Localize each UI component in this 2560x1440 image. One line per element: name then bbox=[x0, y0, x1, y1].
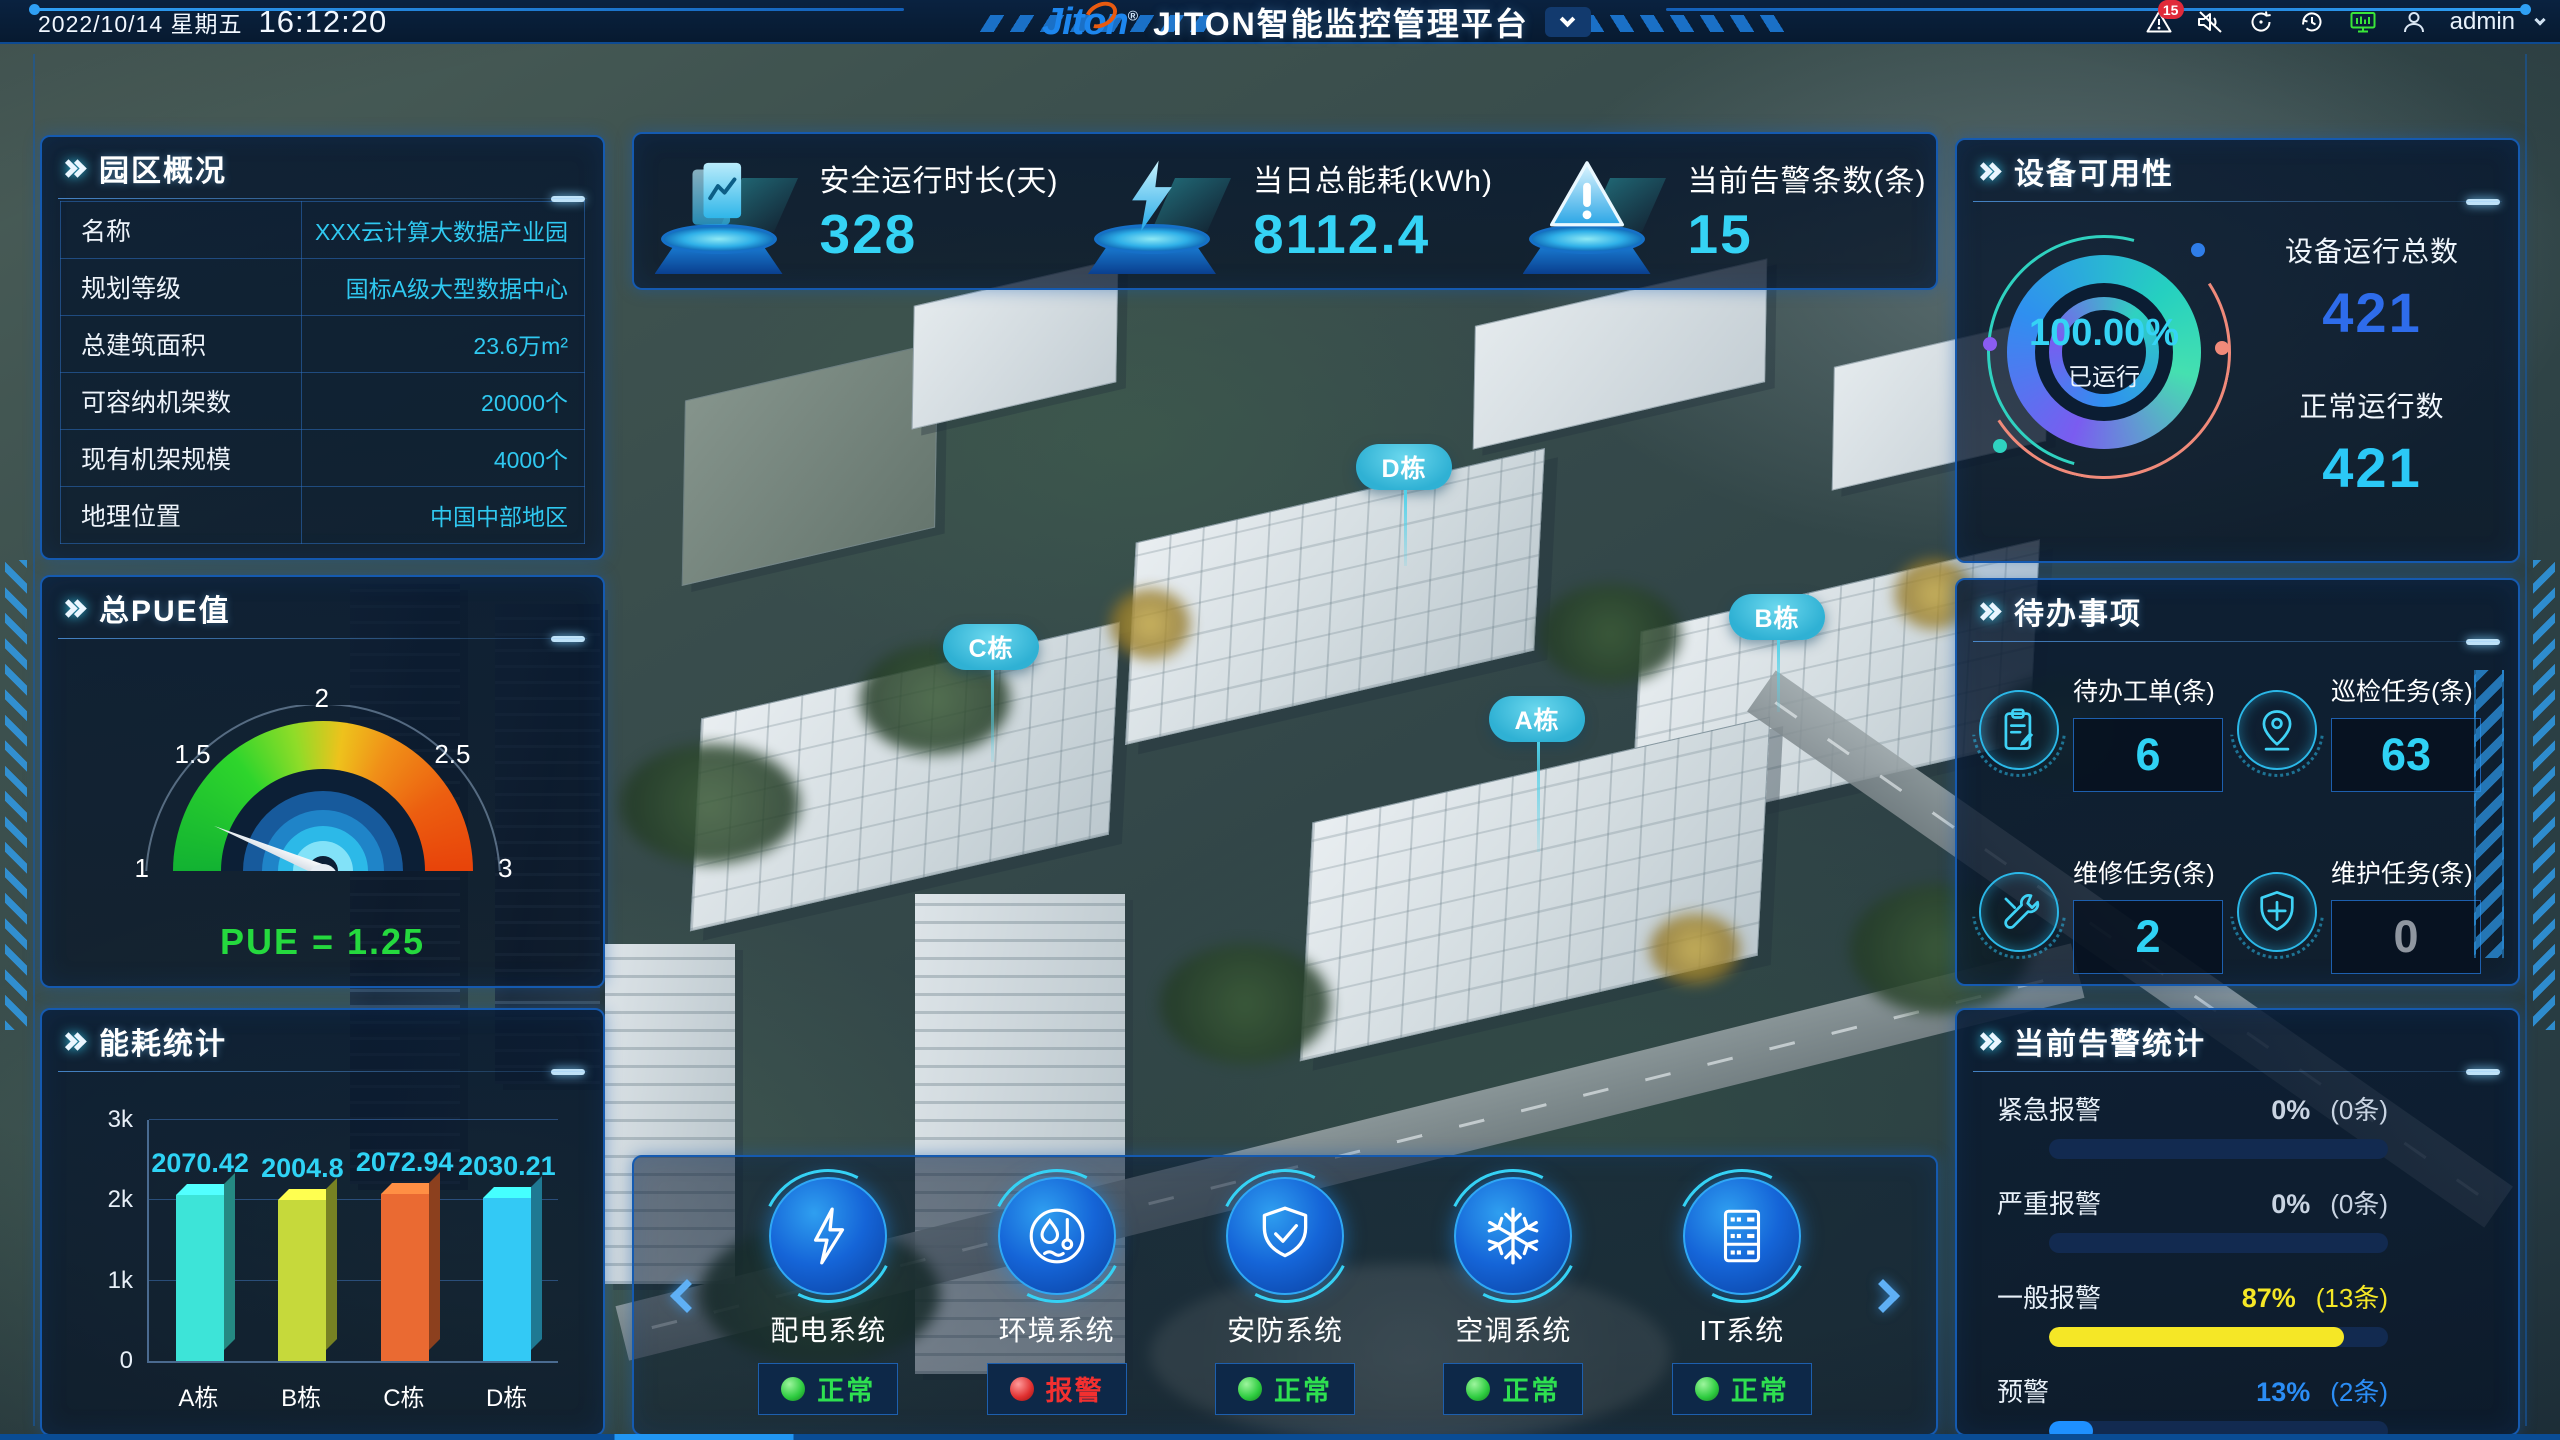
double-chevron-icon bbox=[62, 162, 84, 175]
edge-decoration bbox=[2533, 560, 2555, 1030]
carousel-next-button[interactable] bbox=[1856, 1256, 1910, 1336]
report-icon bbox=[644, 148, 794, 274]
todo-value: 0 bbox=[2393, 911, 2418, 963]
panel-pue: 总PUE值 1 1.5 2 2.5 3 PUE = 1.25 bbox=[40, 575, 605, 988]
panel-systems-carousel: 配电系统 正常 环境系统 报警 安防系统 正常 空调系统 正常 bbox=[632, 1155, 1938, 1436]
panel-park-overview: 园区概况 名称XXX云计算大数据产业园 规划等级国标A级大型数据中心 总建筑面积… bbox=[40, 135, 605, 560]
alarm-percent: 87% bbox=[2242, 1283, 2296, 1314]
row-value: 国标A级大型数据中心 bbox=[302, 259, 585, 316]
availability-percent: 100.00% bbox=[2029, 312, 2179, 355]
status-text: 正常 bbox=[1731, 1369, 1789, 1408]
bar-slot: 2030.21 bbox=[472, 1120, 542, 1361]
status-badge: 报警 bbox=[987, 1363, 1127, 1415]
park-info-table: 名称XXX云计算大数据产业园 规划等级国标A级大型数据中心 总建筑面积23.6万… bbox=[60, 201, 585, 544]
environment-icon bbox=[998, 1177, 1116, 1295]
status-dot bbox=[1466, 1377, 1490, 1401]
system-item-it[interactable]: IT系统 正常 bbox=[1628, 1177, 1856, 1415]
top-bar: 2022/10/14 星期五 16:12:20 Jiton® JITON智能监控… bbox=[0, 0, 2560, 44]
alert-icon bbox=[1512, 148, 1662, 274]
progress-fill bbox=[2049, 1327, 2344, 1347]
alarm-row-severe: 严重报警 0%(0条) bbox=[1997, 1184, 2388, 1253]
app-title: JITON智能监控管理平台 bbox=[1153, 0, 1529, 45]
table-row: 可容纳机架数20000个 bbox=[61, 373, 585, 430]
date-label: 2022/10/14 星期五 bbox=[38, 5, 243, 39]
row-label: 名称 bbox=[61, 202, 302, 259]
pue-value-label: PUE = 1.25 bbox=[42, 921, 603, 963]
todo-item-work-orders: 待办工单(条) 6 bbox=[1979, 672, 2223, 792]
status-dot bbox=[781, 1377, 805, 1401]
clipboard-icon bbox=[1979, 690, 2059, 770]
energy-bar-chart: 0 1k 2k 3k 2070.42 2004.8 2072.94 2030.2… bbox=[147, 1120, 558, 1363]
stat-value: 421 bbox=[2257, 435, 2487, 500]
system-name: 配电系统 bbox=[770, 1309, 886, 1349]
bar-value: 2070.42 bbox=[151, 1148, 249, 1179]
todo-item-inspection: 巡检任务(条) 63 bbox=[2237, 672, 2481, 792]
panel-device-availability: 设备可用性 100.00% 已运行 设备运行总数 421 正常运行数 421 bbox=[1955, 138, 2520, 563]
alarm-row-warning: 预警 13%(2条) bbox=[1997, 1372, 2388, 1440]
row-label: 地理位置 bbox=[61, 487, 302, 544]
panel-title: 设备可用性 bbox=[2014, 149, 2174, 193]
carousel-prev-button[interactable] bbox=[660, 1256, 714, 1336]
time-label: 16:12:20 bbox=[259, 4, 388, 40]
alarm-percent: 0% bbox=[2271, 1189, 2310, 1220]
jiton-logo: Jiton® bbox=[1042, 1, 1137, 44]
lightning-icon bbox=[1077, 148, 1227, 274]
panel-header: 园区概况 bbox=[42, 137, 603, 199]
status-badge: 正常 bbox=[1672, 1363, 1812, 1415]
mute-button[interactable] bbox=[2195, 7, 2225, 37]
todo-value-box: 2 bbox=[2073, 900, 2223, 974]
status-dot bbox=[1010, 1377, 1034, 1401]
pin-line bbox=[1537, 742, 1540, 852]
pin-line bbox=[1404, 490, 1407, 566]
bar: 2030.21 bbox=[483, 1198, 531, 1361]
datetime: 2022/10/14 星期五 16:12:20 bbox=[38, 0, 387, 44]
notification-badge: 15 bbox=[2158, 0, 2184, 19]
table-row: 地理位置中国中部地区 bbox=[61, 487, 585, 544]
panel-header: 总PUE值 bbox=[42, 577, 603, 639]
bar-slot: 2072.94 bbox=[370, 1120, 440, 1361]
status-text: 报警 bbox=[1046, 1369, 1104, 1408]
status-text: 正常 bbox=[817, 1369, 875, 1408]
chevron-down-icon bbox=[1560, 12, 1576, 28]
alarm-percent: 0% bbox=[2271, 1095, 2310, 1126]
alarm-notifications-button[interactable]: 15 bbox=[2144, 7, 2174, 37]
chevron-down-icon[interactable] bbox=[2534, 14, 2545, 25]
user-icon bbox=[2400, 8, 2428, 36]
system-name: 安防系统 bbox=[1227, 1309, 1343, 1349]
bar-slot: 2004.8 bbox=[267, 1120, 337, 1361]
kpi-value: 15 bbox=[1688, 202, 1927, 266]
decorative-dot bbox=[1983, 337, 1997, 351]
alarm-label: 一般报警 bbox=[1997, 1278, 2101, 1315]
building-label-text: B栋 bbox=[1754, 599, 1799, 635]
alarm-count: (0条) bbox=[2330, 1090, 2388, 1127]
y-tick: 0 bbox=[120, 1347, 133, 1375]
kpi-label: 当日总能耗(kWh) bbox=[1253, 156, 1493, 200]
progress-track bbox=[2049, 1327, 2388, 1347]
todo-item-maintenance: 维护任务(条) 0 bbox=[2237, 854, 2481, 974]
server-icon bbox=[1683, 1177, 1801, 1295]
status-text: 正常 bbox=[1274, 1369, 1332, 1408]
snowflake-icon bbox=[1454, 1177, 1572, 1295]
kpi-card-alarms: 当前告警条数(条) 15 bbox=[1502, 148, 1936, 274]
availability-sub-label: 已运行 bbox=[2068, 357, 2140, 392]
edge-line bbox=[2525, 54, 2527, 1426]
row-label: 可容纳机架数 bbox=[61, 373, 302, 430]
kpi-label: 安全运行时长(天) bbox=[820, 156, 1059, 200]
brand: Jiton® JITON智能监控管理平台 bbox=[1042, 0, 1591, 44]
todo-label: 维修任务(条) bbox=[2073, 854, 2223, 890]
panel-title: 能耗统计 bbox=[99, 1019, 227, 1063]
bar-value: 2072.94 bbox=[356, 1147, 454, 1178]
alarm-percent: 13% bbox=[2256, 1377, 2310, 1408]
system-item-hvac[interactable]: 空调系统 正常 bbox=[1399, 1177, 1627, 1415]
bar-value: 2004.8 bbox=[261, 1153, 344, 1184]
panel-alarm-stats: 当前告警统计 紧急报警 0%(0条) 严重报警 0%(0条) 一般报警 87%(… bbox=[1955, 1008, 2520, 1436]
row-value: 23.6万m² bbox=[302, 316, 585, 373]
bottom-accent-line bbox=[0, 1434, 2560, 1440]
kpi-label: 当前告警条数(条) bbox=[1688, 156, 1927, 200]
bar: 2004.8 bbox=[278, 1200, 326, 1361]
todo-label: 待办工单(条) bbox=[2073, 672, 2223, 708]
dashboard: D栋 C栋 B栋 A栋 2022/10/14 星期五 16:12:20 Jito… bbox=[0, 0, 2560, 1440]
system-name: IT系统 bbox=[1699, 1309, 1784, 1349]
stat-label: 设备运行总数 bbox=[2257, 230, 2487, 270]
system-item-power[interactable]: 配电系统 正常 bbox=[714, 1177, 942, 1415]
panel-title: 园区概况 bbox=[99, 146, 227, 190]
status-dot bbox=[1695, 1377, 1719, 1401]
username[interactable]: admin bbox=[2450, 8, 2515, 36]
pin-line bbox=[1777, 640, 1780, 712]
double-chevron-icon bbox=[1977, 1035, 1999, 1048]
todo-label: 维护任务(条) bbox=[2331, 854, 2481, 890]
alarm-label: 预警 bbox=[1997, 1372, 2049, 1409]
double-chevron-icon bbox=[62, 1035, 84, 1048]
double-chevron-icon bbox=[1977, 165, 1999, 178]
kpi-strip: 安全运行时长(天) 328 当日总能耗(kWh) 8112.4 当前告警条数(条… bbox=[632, 132, 1938, 290]
table-row: 总建筑面积23.6万m² bbox=[61, 316, 585, 373]
decorative-dot bbox=[2215, 341, 2229, 355]
stat-value: 421 bbox=[2257, 280, 2487, 345]
logo-text: Jiton bbox=[1042, 1, 1128, 43]
alarm-row-critical: 紧急报警 0%(0条) bbox=[1997, 1090, 2388, 1159]
panel-header: 能耗统计 bbox=[42, 1010, 603, 1072]
collapse-button[interactable] bbox=[2466, 199, 2500, 205]
kpi-card-energy: 当日总能耗(kWh) 8112.4 bbox=[1068, 148, 1502, 274]
device-stats: 设备运行总数 421 正常运行数 421 bbox=[2257, 230, 2487, 540]
building-label-text: C栋 bbox=[968, 629, 1013, 665]
progress-track bbox=[2049, 1139, 2388, 1159]
monitor-button[interactable] bbox=[2348, 7, 2378, 37]
row-label: 规划等级 bbox=[61, 259, 302, 316]
row-value: 20000个 bbox=[302, 373, 585, 430]
y-tick: 2k bbox=[108, 1186, 133, 1214]
alarm-label: 严重报警 bbox=[1997, 1184, 2101, 1221]
stat-label: 正常运行数 bbox=[2257, 385, 2487, 425]
row-value: 中国中部地区 bbox=[302, 487, 585, 544]
bar: 2070.42 bbox=[176, 1195, 224, 1361]
panel-todo: 待办事项 待办工单(条) 6 巡检任务(条) 63 bbox=[1955, 578, 2520, 986]
table-row: 规划等级国标A级大型数据中心 bbox=[61, 259, 585, 316]
alarm-count: (2条) bbox=[2330, 1372, 2388, 1409]
panel-title: 待办事项 bbox=[2014, 589, 2142, 633]
status-dot bbox=[1238, 1377, 1262, 1401]
panel-header: 设备可用性 bbox=[1957, 140, 2518, 202]
building-label-text: A栋 bbox=[1514, 701, 1559, 737]
pin-line bbox=[991, 670, 994, 762]
system-item-security[interactable]: 安防系统 正常 bbox=[1171, 1177, 1399, 1415]
location-pin-icon bbox=[2237, 690, 2317, 770]
chevron-left-icon bbox=[670, 1279, 704, 1313]
table-row: 现有机架规模4000个 bbox=[61, 430, 585, 487]
todo-value: 2 bbox=[2135, 911, 2160, 963]
table-row: 名称XXX云计算大数据产业园 bbox=[61, 202, 585, 259]
todo-item-repair: 维修任务(条) 2 bbox=[1979, 854, 2223, 974]
todo-value-box: 6 bbox=[2073, 718, 2223, 792]
x-tick: C栋 bbox=[369, 1378, 439, 1413]
panel-energy: 能耗统计 0 1k 2k 3k 2070.42 2004.8 2072.94 2… bbox=[40, 1008, 605, 1436]
building-shape bbox=[1125, 448, 1545, 745]
title-dropdown-button[interactable] bbox=[1545, 7, 1591, 37]
speaker-muted-icon bbox=[2196, 8, 2224, 36]
x-axis-labels: A栋 B栋 C栋 D栋 bbox=[147, 1378, 558, 1413]
system-item-environment[interactable]: 环境系统 报警 bbox=[942, 1177, 1170, 1415]
kpi-value: 8112.4 bbox=[1253, 202, 1493, 266]
refresh-button[interactable] bbox=[2246, 7, 2276, 37]
building-shape bbox=[690, 622, 1120, 932]
todo-value: 6 bbox=[2135, 729, 2160, 781]
tree-cluster bbox=[1540, 584, 1680, 684]
status-badge: 正常 bbox=[1215, 1363, 1355, 1415]
x-tick: D栋 bbox=[472, 1378, 542, 1413]
panel-header: 待办事项 bbox=[1957, 580, 2518, 642]
todo-label: 巡检任务(条) bbox=[2331, 672, 2481, 708]
tree-cluster bbox=[620, 744, 800, 864]
bar: 2072.94 bbox=[381, 1194, 429, 1361]
bar-slot: 2070.42 bbox=[165, 1120, 235, 1361]
refresh-icon bbox=[2247, 8, 2275, 36]
pue-gauge: 1 1.5 2 2.5 3 bbox=[123, 675, 523, 899]
status-text: 正常 bbox=[1502, 1369, 1560, 1408]
security-shield-icon bbox=[1226, 1177, 1344, 1295]
alarm-count: (0条) bbox=[2330, 1184, 2388, 1221]
edge-line bbox=[33, 54, 35, 1426]
x-tick: B栋 bbox=[266, 1378, 336, 1413]
building-shape bbox=[1300, 717, 1770, 1062]
row-value: XXX云计算大数据产业园 bbox=[302, 202, 585, 259]
bar-value: 2030.21 bbox=[458, 1151, 556, 1182]
registered-mark: ® bbox=[1128, 7, 1137, 23]
collapse-button[interactable] bbox=[551, 636, 585, 642]
status-badge: 正常 bbox=[758, 1363, 898, 1415]
collapse-button[interactable] bbox=[551, 1069, 585, 1075]
availability-donut: 100.00% 已运行 bbox=[1997, 245, 2211, 459]
system-name: 空调系统 bbox=[1455, 1309, 1571, 1349]
history-clock-icon bbox=[2298, 8, 2326, 36]
building-label-a[interactable]: A栋 bbox=[1489, 696, 1585, 742]
shield-icon bbox=[2237, 872, 2317, 952]
building-label-c[interactable]: C栋 bbox=[943, 624, 1039, 670]
double-chevron-icon bbox=[62, 602, 84, 615]
collapse-button[interactable] bbox=[2466, 639, 2500, 645]
todo-value-box: 0 bbox=[2331, 900, 2481, 974]
tools-icon bbox=[1979, 872, 2059, 952]
system-name: 环境系统 bbox=[999, 1309, 1115, 1349]
alarm-label: 紧急报警 bbox=[1997, 1090, 2101, 1127]
y-tick: 1k bbox=[108, 1267, 133, 1295]
building-shape bbox=[682, 342, 939, 586]
double-chevron-icon bbox=[1977, 605, 1999, 618]
progress-track bbox=[2049, 1233, 2388, 1253]
tree-cluster bbox=[1160, 944, 1330, 1064]
building-label-d[interactable]: D栋 bbox=[1356, 444, 1452, 490]
status-badge: 正常 bbox=[1443, 1363, 1583, 1415]
building-label-b[interactable]: B栋 bbox=[1729, 594, 1825, 640]
panel-header: 当前告警统计 bbox=[1957, 1010, 2518, 1072]
edge-decoration bbox=[5, 560, 27, 1030]
chevron-right-icon bbox=[1866, 1279, 1900, 1313]
monitor-chart-icon bbox=[2349, 8, 2377, 36]
todo-value-box: 63 bbox=[2331, 718, 2481, 792]
panel-title: 当前告警统计 bbox=[2014, 1019, 2206, 1063]
kpi-value: 328 bbox=[820, 202, 1059, 266]
tree-cluster bbox=[1650, 914, 1740, 984]
collapse-button[interactable] bbox=[2466, 1069, 2500, 1075]
building-label-text: D栋 bbox=[1381, 449, 1426, 485]
row-label: 总建筑面积 bbox=[61, 316, 302, 373]
alarm-row-general: 一般报警 87%(13条) bbox=[1997, 1278, 2388, 1347]
power-icon bbox=[769, 1177, 887, 1295]
tree-cluster bbox=[1110, 589, 1190, 659]
edge-decoration bbox=[2474, 670, 2504, 958]
row-label: 现有机架规模 bbox=[61, 430, 302, 487]
collapse-button[interactable] bbox=[551, 196, 585, 202]
history-button[interactable] bbox=[2297, 7, 2327, 37]
user-button[interactable] bbox=[2399, 7, 2429, 37]
row-value: 4000个 bbox=[302, 430, 585, 487]
kpi-card-uptime: 安全运行时长(天) 328 bbox=[634, 148, 1068, 274]
y-tick: 3k bbox=[108, 1106, 133, 1134]
alarm-count: (13条) bbox=[2316, 1278, 2388, 1315]
topbar-actions: 15 admin bbox=[2144, 0, 2544, 44]
todo-value: 63 bbox=[2381, 729, 2431, 781]
panel-title: 总PUE值 bbox=[99, 586, 231, 630]
x-tick: A栋 bbox=[163, 1378, 233, 1413]
